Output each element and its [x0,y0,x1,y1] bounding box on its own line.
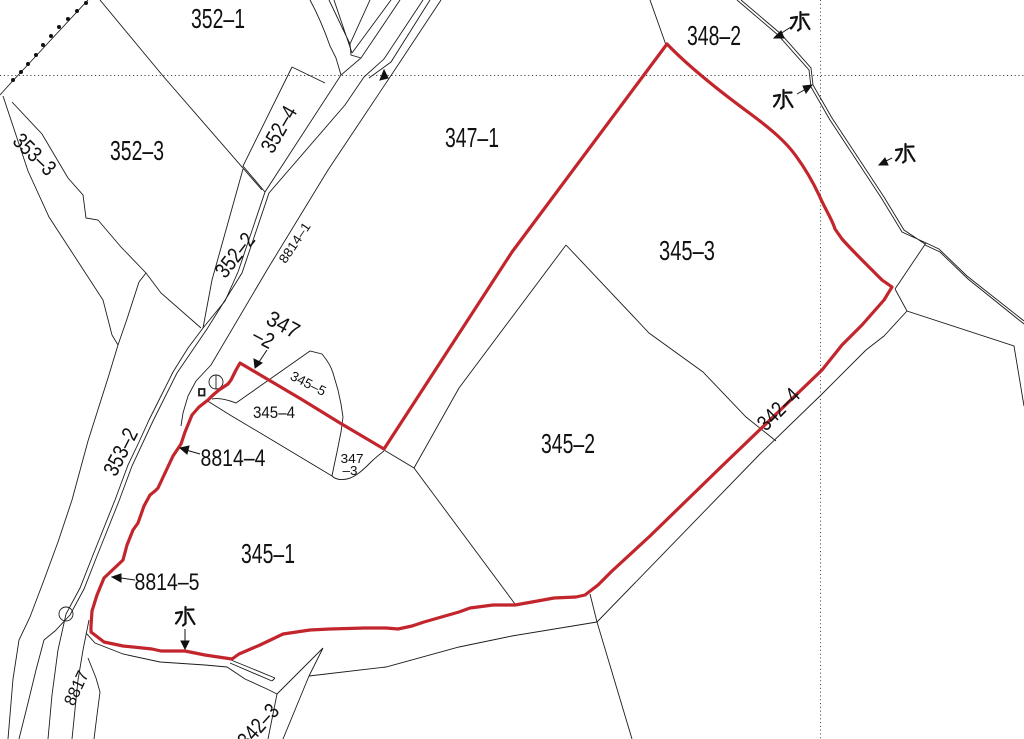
svg-text:8814–1: 8814–1 [276,219,314,266]
svg-text:8814–4: 8814–4 [201,445,266,472]
svg-text:342–3: 342–3 [232,698,284,739]
svg-text:8814–5: 8814–5 [135,569,200,596]
svg-text:345–1: 345–1 [241,538,295,569]
svg-text:352–3: 352–3 [110,135,164,166]
svg-text:–3: –3 [343,463,358,478]
svg-text:352–2: 352–2 [210,228,260,283]
svg-text:345–4: 345–4 [253,403,295,422]
svg-text:352–1: 352–1 [191,3,245,34]
svg-text:352–4: 352–4 [255,101,302,157]
svg-text:347–1: 347–1 [445,122,499,153]
svg-text:345–3: 345–3 [659,235,715,266]
svg-text:345–2: 345–2 [541,428,595,459]
svg-text:8817: 8817 [60,668,92,709]
svg-text:353–2: 353–2 [98,424,143,480]
svg-text:348–2: 348–2 [687,20,741,51]
